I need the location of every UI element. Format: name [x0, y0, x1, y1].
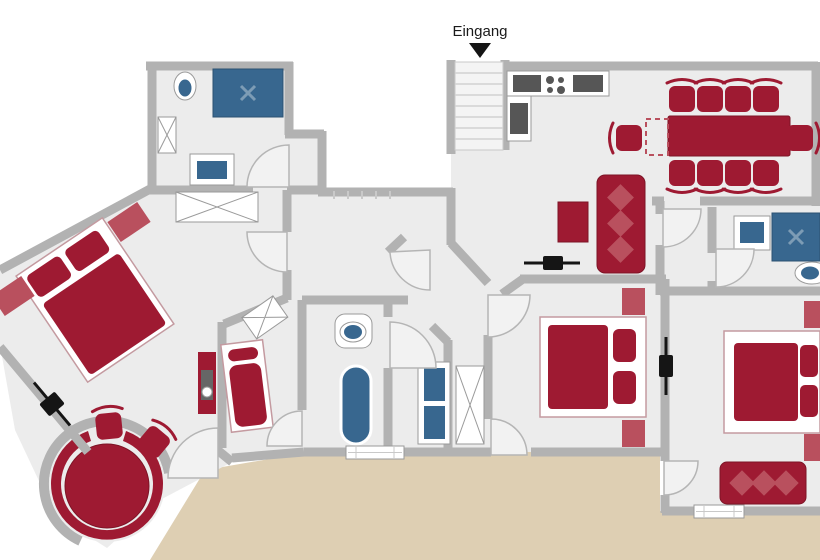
pillow [800, 345, 818, 377]
dryer [424, 406, 445, 439]
washbasin-bowl [740, 222, 764, 243]
counter-appliance [513, 75, 541, 92]
washer [424, 368, 445, 401]
floor-plan: Eingang [0, 0, 820, 560]
bathtub [341, 366, 371, 444]
nightstand [804, 434, 820, 461]
sofa-cushions [607, 184, 634, 263]
pillow [613, 371, 636, 404]
toilet-bowl [344, 325, 362, 339]
entrance-label: Eingang [452, 23, 507, 40]
bathroom-middle [335, 314, 372, 444]
nightstand [804, 301, 820, 328]
sofa-cushions [729, 470, 798, 495]
pillow [613, 329, 636, 362]
oven [510, 103, 528, 134]
mattress [734, 343, 798, 421]
window-bottom-middle [346, 446, 404, 459]
bedroom-right [720, 301, 820, 504]
counter-appliance [573, 75, 603, 92]
pillow [800, 385, 818, 417]
mattress [548, 325, 608, 409]
washbasin-bowl [197, 161, 227, 179]
round-table [65, 444, 149, 528]
window-bottom-right [694, 505, 744, 518]
floor-plan-canvas: Eingang [0, 0, 820, 560]
nightstand [622, 288, 645, 315]
toilet-bowl [179, 80, 192, 97]
toilet-bowl [801, 267, 819, 280]
coffee-table [558, 202, 588, 242]
dining-table [668, 116, 790, 156]
nightstand [622, 420, 645, 447]
dresser-with-basin [198, 352, 216, 414]
